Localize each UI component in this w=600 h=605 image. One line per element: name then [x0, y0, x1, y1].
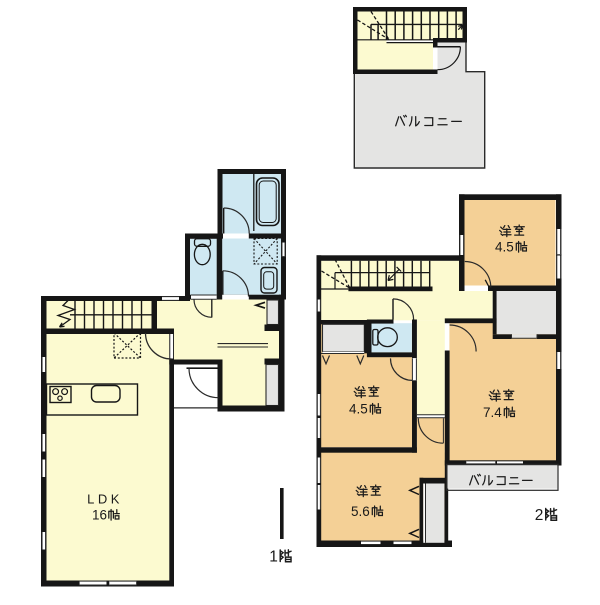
- svg-text:LDK: LDK: [87, 492, 123, 507]
- svg-text:16: 16: [92, 508, 107, 523]
- svg-text:1: 1: [269, 549, 278, 566]
- svg-text:7.4: 7.4: [483, 405, 502, 420]
- svg-text:2: 2: [535, 507, 544, 524]
- svg-text:4.5: 4.5: [495, 240, 514, 255]
- svg-text:5.6: 5.6: [351, 504, 370, 519]
- svg-text:4.5: 4.5: [349, 402, 368, 417]
